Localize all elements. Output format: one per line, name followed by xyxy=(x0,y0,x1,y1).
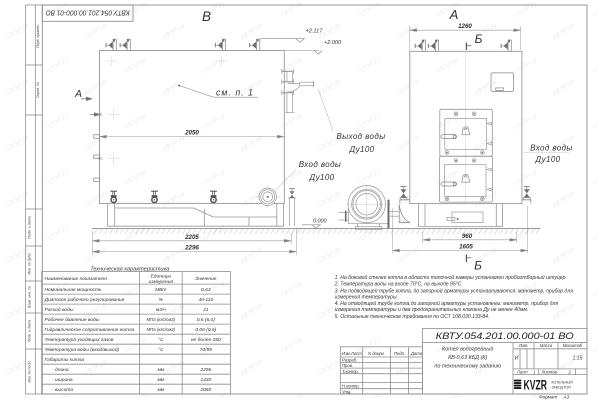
svg-text:Разраб.: Разраб. xyxy=(342,358,357,363)
svg-text:1:15: 1:15 xyxy=(572,356,582,362)
svg-text:3. На подводящей трубе котла,: 3. На подводящей трубе котла, до запорно… xyxy=(335,287,574,294)
svg-text:Изм.Лист: Изм.Лист xyxy=(342,351,362,356)
svg-text:Лит.: Лит. xyxy=(518,343,529,348)
svg-text:Лист: Лист xyxy=(516,370,528,375)
svg-text:КВТУ.054.201.00.000-01 ВО: КВТУ.054.201.00.000-01 ВО xyxy=(45,9,130,16)
svg-text:1605: 1605 xyxy=(459,244,473,251)
svg-text:2050: 2050 xyxy=(199,387,211,393)
svg-text:- длина: - длина xyxy=(52,367,69,373)
svg-text:Номинальная мощность: Номинальная мощность xyxy=(45,287,103,293)
svg-text:мм: мм xyxy=(157,368,164,373)
svg-text:Формат: Формат xyxy=(539,395,557,400)
svg-text:Габариты котла: Габариты котла xyxy=(45,357,85,363)
svg-text:2296: 2296 xyxy=(184,245,199,252)
svg-text:А3: А3 xyxy=(563,395,570,400)
svg-text:%: % xyxy=(159,297,164,303)
svg-text:мм: мм xyxy=(157,388,164,393)
svg-text:Температура уходящих газов: Температура уходящих газов xyxy=(45,337,114,343)
svg-text:В: В xyxy=(202,9,211,24)
svg-text:Масштаб: Масштаб xyxy=(563,343,583,348)
svg-text:Значение: Значение xyxy=(195,276,217,282)
svg-text:Ду100: Ду100 xyxy=(348,145,374,154)
svg-text:Пров.: Пров. xyxy=(342,363,353,368)
svg-text:Б: Б xyxy=(474,259,482,273)
svg-text:0,6 (6,0): 0,6 (6,0) xyxy=(197,317,216,323)
svg-text:МВт: МВт xyxy=(155,287,166,293)
svg-text:4. На отводящей трубе котла,д: 4. На отводящей трубе котла,до запорной … xyxy=(335,300,559,307)
svg-text:0,63: 0,63 xyxy=(201,287,211,293)
svg-text:Листов: Листов xyxy=(541,370,558,375)
svg-text:МПа (кгс/см2): МПа (кгс/см2) xyxy=(146,317,175,322)
svg-text:А: А xyxy=(449,7,459,22)
svg-text:КОТЕЛЬНЫЙ: КОТЕЛЬНЫЙ xyxy=(552,380,574,384)
svg-text:И: И xyxy=(515,356,519,362)
svg-text:- ширина: - ширина xyxy=(52,378,73,383)
svg-text:КВТУ.054.201.00.000-01 ВО: КВТУ.054.201.00.000-01 ВО xyxy=(436,331,574,341)
svg-text:0,06 (0,6): 0,06 (0,6) xyxy=(195,327,216,333)
svg-text:Инв. № подл.: Инв. № подл. xyxy=(28,360,32,382)
svg-text:Масса: Масса xyxy=(540,343,553,348)
svg-text:40-110: 40-110 xyxy=(198,297,213,303)
svg-text:Вход воды: Вход воды xyxy=(530,144,572,153)
svg-text:Наименование показателя: Наименование показателя xyxy=(45,276,108,282)
svg-text:960: 960 xyxy=(462,233,473,240)
svg-text:1260: 1260 xyxy=(458,23,472,30)
svg-text:м3/ч: м3/ч xyxy=(156,307,166,313)
svg-text:Утв.: Утв. xyxy=(342,389,352,394)
svg-text:Подп.: Подп. xyxy=(394,351,405,356)
svg-text:измерения температуры.: измерения температуры. xyxy=(335,294,398,300)
svg-text:не более 280: не более 280 xyxy=(191,337,221,343)
svg-text:Б: Б xyxy=(475,32,483,46)
svg-text:1430: 1430 xyxy=(200,377,211,383)
svg-text:Перв. примен.: Перв. примен. xyxy=(36,24,40,48)
svg-text:2050: 2050 xyxy=(184,130,199,137)
svg-text:Котел водогрейный: Котел водогрейный xyxy=(442,346,493,353)
svg-text:Выход воды: Выход воды xyxy=(337,132,386,141)
svg-text:Инв. № дубл.: Инв. № дубл. xyxy=(28,252,32,274)
svg-text:Подп. и дата: Подп. и дата xyxy=(28,216,32,239)
svg-text:мм: мм xyxy=(157,378,164,383)
svg-text:5. Остальные технические треб: 5. Остальные технические требования по О… xyxy=(335,314,490,320)
svg-text:КВ-0,63 КБД (К): КВ-0,63 КБД (К) xyxy=(448,355,487,361)
svg-text:Рабочее давление воды: Рабочее давление воды xyxy=(45,317,100,323)
svg-text:Температура воды (вход/выход): Температура воды (вход/выход) xyxy=(45,347,120,353)
svg-text:Ду100: Ду100 xyxy=(308,173,334,182)
svg-text:Т.контр.: Т.контр. xyxy=(342,369,359,374)
svg-text:ЗАВОД РЭП: ЗАВОД РЭП xyxy=(552,386,572,390)
svg-text:Диапазон рабочего регулировани: Диапазон рабочего регулирования xyxy=(44,297,125,303)
svg-text:МПа (кгс/см2): МПа (кгс/см2) xyxy=(146,327,175,332)
svg-text:Взам. инв. №: Взам. инв. № xyxy=(28,286,32,308)
svg-text:N докум: N докум xyxy=(368,351,384,356)
svg-text:Гидравлическое сопротивление к: Гидравлическое сопротивление котла xyxy=(45,327,135,333)
svg-text:0.000: 0.000 xyxy=(313,219,327,225)
svg-text:Справ. №: Справ. № xyxy=(36,82,40,98)
svg-text:Единицы: Единицы xyxy=(151,273,172,279)
svg-text:°С: °С xyxy=(158,347,164,353)
svg-text:измерения: измерения xyxy=(149,280,174,285)
svg-text:°С: °С xyxy=(158,337,164,343)
svg-text:см. п. 1: см. п. 1 xyxy=(216,87,254,97)
svg-text:2205: 2205 xyxy=(184,234,199,241)
svg-text:измерения температуры и два пр: измерения температуры и два предохраните… xyxy=(335,307,529,313)
svg-text:Подп. и дата: Подп. и дата xyxy=(28,320,32,343)
svg-text:+2.117: +2.117 xyxy=(306,29,324,35)
svg-text:70/95: 70/95 xyxy=(200,347,213,353)
svg-text:1: 1 xyxy=(533,370,535,375)
svg-text:1. На боковой стенке котла в: 1. На боковой стенке котла в области топ… xyxy=(335,274,566,281)
svg-text:по техническому заданию: по техническому заданию xyxy=(434,363,501,369)
svg-text:Дата: Дата xyxy=(410,351,423,356)
svg-text:Ду100: Ду100 xyxy=(534,155,560,164)
svg-text:- высота: - высота xyxy=(52,388,73,393)
svg-text:KVZR: KVZR xyxy=(524,378,548,393)
svg-text:А: А xyxy=(74,88,82,100)
svg-text:2. Температура воды на входе: 2. Температура воды на входе 70°С, на вы… xyxy=(334,282,463,288)
svg-text:Н.контр.: Н.контр. xyxy=(342,383,360,388)
svg-text:+2.000: +2.000 xyxy=(324,40,342,46)
svg-text:Расход воды: Расход воды xyxy=(45,307,74,313)
svg-text:21: 21 xyxy=(202,307,209,313)
svg-text:Вход воды: Вход воды xyxy=(299,160,341,169)
svg-text:2296: 2296 xyxy=(199,367,211,373)
